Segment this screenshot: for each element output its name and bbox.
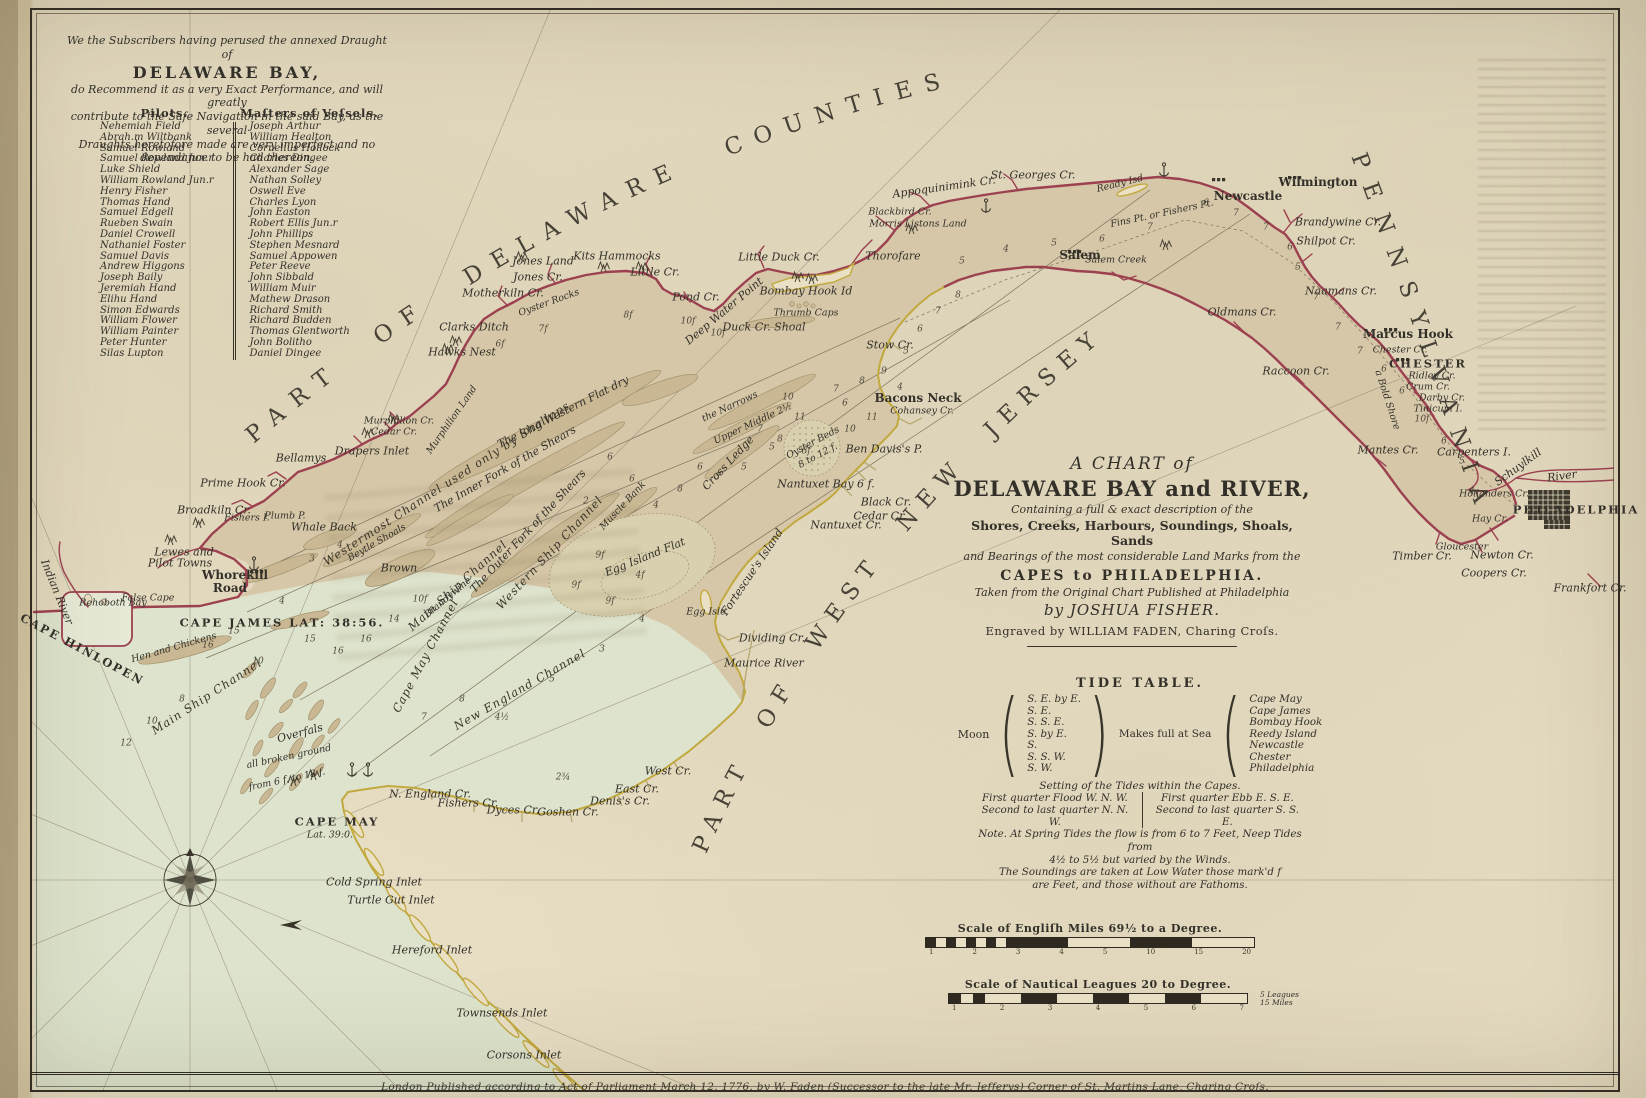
- map-label: Wilmington: [1278, 176, 1357, 188]
- soundings-note: The Soundings are taken at Low Water tho…: [975, 866, 1305, 879]
- map-label: Road: [213, 582, 247, 594]
- sounding-value: 6f: [495, 341, 504, 350]
- sounding-value: 10: [146, 718, 157, 727]
- miles-end-label: 15 Miles: [1260, 999, 1299, 1007]
- map-label: Morris Listons Land: [869, 219, 966, 229]
- chart-sheet: PART OF DELAWARE COUNTIES PART OF WEST N…: [0, 0, 1646, 1098]
- sounding-value: 5: [959, 258, 965, 267]
- sounding-value: 7f: [538, 326, 547, 335]
- sounding-value: 6: [607, 454, 613, 463]
- map-label: Maurice River: [724, 658, 804, 669]
- sounding-value: 12: [120, 740, 131, 749]
- map-label: Ben Davis's P.: [846, 444, 923, 455]
- sounding-value: 9: [881, 368, 887, 377]
- sounding-value: 6: [1399, 388, 1405, 397]
- sounding-value: 6: [697, 464, 703, 473]
- chart-subtitle: Shores, Creeks, Harbours, Soundings, Sho…: [952, 519, 1312, 548]
- map-label: Prime Hook Cr.: [200, 478, 286, 489]
- chart-engraver: Engraved by WILLIAM FADEN, Charing Croſs…: [952, 625, 1312, 638]
- scale-miles-bar: [925, 937, 1255, 948]
- map-label: Marcus Hook: [1363, 328, 1453, 340]
- scale-tick: 2: [1000, 1004, 1004, 1012]
- map-label: Jones Cr.: [513, 272, 563, 283]
- scale-leagues-title: Scale of Nautical Leagues 20 to Degree.: [948, 978, 1248, 991]
- scale-tick: 15: [1194, 948, 1203, 956]
- scale-tick: 1: [929, 948, 933, 956]
- map-label: Crum Cr.: [1406, 382, 1450, 392]
- sounding-value: 16: [332, 648, 343, 657]
- ebb-line: Second to last quarter S. S. E.: [1150, 804, 1305, 828]
- map-label: Goshen Cr.: [537, 807, 598, 818]
- spring-tides-note: Note. At Spring Tides the flow is from 6…: [975, 828, 1305, 854]
- map-label: Newton Cr.: [1470, 550, 1533, 561]
- sounding-value: 10: [782, 394, 793, 403]
- testimonial-intro: We the Subscribers having perused the an…: [62, 34, 392, 62]
- map-label: Shilpot Cr.: [1296, 236, 1355, 247]
- tide-table: TIDE TABLE. Moon ( S. E. by E.S. E.S. S.…: [975, 676, 1305, 892]
- master-name: Oswell Eve: [250, 187, 383, 198]
- scale-miles-title: Scale of Engliſh Miles 69½ to a Degree.: [925, 922, 1255, 935]
- sounding-value: 9f: [571, 582, 580, 591]
- scale-tick: 3: [1048, 1004, 1052, 1012]
- chart-author: by JOSHUA FISHER.: [952, 602, 1312, 619]
- sounding-value: 6: [1203, 200, 1209, 209]
- sounding-value: 7: [1313, 294, 1319, 303]
- sounding-value: 4f: [635, 572, 644, 581]
- map-label: Bacons Neck: [874, 392, 961, 404]
- brace-glyph: (: [999, 693, 1019, 776]
- map-label: Ridley Cr.: [1408, 371, 1455, 381]
- map-label: St. Georges Cr.: [991, 170, 1076, 181]
- tide-directions: S. E. by E.S. E.S. S. E.S. by E.S.S. S. …: [1027, 694, 1081, 775]
- title-cartouche: A CHART of DELAWARE BAY and RIVER, Conta…: [952, 455, 1312, 647]
- testimonial-title: DELAWARE BAY,: [62, 63, 392, 82]
- map-label: Oldmans Cr.: [1208, 307, 1277, 318]
- tide-place: Cape May: [1249, 694, 1322, 706]
- sounding-value: 8: [859, 378, 865, 387]
- map-label: Brandywine Cr.: [1295, 217, 1381, 228]
- sounding-value: 7: [833, 386, 839, 395]
- sounding-value: 3: [599, 646, 605, 655]
- map-label: Raccoon Cr.: [1262, 366, 1329, 377]
- masters-list: Joseph ArthurWilliam HealtonCornelius Ho…: [233, 122, 383, 360]
- sounding-value: 8f: [623, 312, 632, 321]
- imprint-text: London Published according to Act of Par…: [381, 1081, 1269, 1093]
- sounding-value: 3: [309, 556, 315, 565]
- map-label: Pond Cr.: [672, 292, 719, 303]
- chart-capes-line: CAPES to PHILADELPHIA.: [952, 568, 1312, 584]
- brace-glyph: (: [1222, 693, 1242, 776]
- map-label: Denis's Cr.: [590, 796, 650, 807]
- map-label: Kits Hammocks: [573, 251, 660, 262]
- map-label: Timber Cr.: [1392, 551, 1452, 562]
- sounding-value: 8: [955, 292, 961, 301]
- moon-label: Moon: [958, 728, 990, 741]
- map-label: Clarks Ditch: [439, 322, 509, 333]
- map-label: Little Duck Cr.: [738, 252, 819, 263]
- map-label: Salem Creek: [1085, 255, 1147, 265]
- scale-tick: 10: [1146, 948, 1155, 956]
- sounding-value: 4: [653, 502, 659, 511]
- ebb-line: First quarter Ebb E. S. E.: [1150, 792, 1305, 804]
- map-label: Bombay Hook Id: [760, 286, 853, 297]
- scale-tick: 20: [1242, 948, 1251, 956]
- soundings-note: are Feet, and those without are Fathoms.: [975, 879, 1305, 892]
- master-name: Mathew Drason: [250, 295, 383, 306]
- map-label: Mantes Cr.: [1358, 445, 1419, 456]
- map-label: Murphilion Cr.: [364, 416, 434, 426]
- sounding-value: 14: [388, 616, 399, 625]
- sounding-value: 9f: [595, 552, 604, 561]
- sounding-value: 10: [252, 658, 263, 667]
- map-label: Cedar Cr.: [371, 427, 417, 437]
- map-label: Hawks Nest: [428, 347, 496, 358]
- map-label: West Cr.: [645, 766, 691, 777]
- cartouche-rule: [1027, 646, 1237, 647]
- sounding-value: 6: [842, 400, 848, 409]
- map-label: Frankfort Cr.: [1553, 583, 1626, 594]
- scale-tick: 6: [1192, 1004, 1196, 1012]
- scale-tick: 5: [1144, 1004, 1148, 1012]
- sounding-value: 2¾: [556, 774, 570, 783]
- sounding-value: 10f: [681, 318, 696, 327]
- map-label: Hereford Inlet: [392, 945, 472, 956]
- subscribers-block: Pilots. Maſters of Veſsels. Nehemiah Fie…: [92, 106, 382, 360]
- sounding-value: 5: [549, 676, 555, 685]
- chart-title-main: DELAWARE BAY and RIVER,: [952, 477, 1312, 501]
- sounding-value: 5: [903, 348, 909, 357]
- map-label: Coopers Cr.: [1461, 568, 1527, 579]
- chart-title-line: A CHART of: [952, 455, 1312, 475]
- map-label: Fishers I.: [224, 513, 269, 523]
- sounding-value: 6: [1099, 236, 1105, 245]
- master-name: William Healton: [250, 133, 383, 144]
- map-label: Townsends Inlet: [457, 1008, 548, 1019]
- scale-leagues-bar: 5 Leagues 15 Miles: [948, 993, 1248, 1004]
- map-label: Little Cr.: [630, 267, 679, 278]
- map-label: Darby Cr.: [1419, 393, 1465, 403]
- spring-tides-note: 4½ to 5½ but varied by the Winds.: [975, 854, 1305, 867]
- scale-leagues-ticks: 1234567: [948, 1004, 1248, 1012]
- scale-tick: 7: [1240, 1004, 1244, 1012]
- sounding-value: 10f: [711, 330, 726, 339]
- sounding-value: 7: [715, 474, 721, 483]
- sounding-value: 4: [897, 384, 903, 393]
- sounding-value: 6: [1287, 244, 1293, 253]
- sounding-value: 4½: [495, 714, 509, 723]
- sounding-value: 5: [1459, 458, 1465, 467]
- map-label: Tinicum I.: [1414, 404, 1463, 414]
- sounding-value: 16: [360, 636, 371, 645]
- sounding-value: 7: [421, 714, 427, 723]
- sounding-value: 6: [629, 476, 635, 485]
- scale-tick: 5: [1103, 948, 1107, 956]
- tide-direction: S.: [1027, 740, 1081, 752]
- sounding-value: 2: [583, 498, 589, 507]
- sounding-value: 4: [1003, 246, 1009, 255]
- scale-tick: 3: [1016, 948, 1020, 956]
- sounding-value: 4: [639, 616, 645, 625]
- sounding-value: 6: [1441, 438, 1447, 447]
- map-label: Pilot Towns: [148, 558, 212, 569]
- imprint-strip: London Published according to Act of Par…: [30, 1072, 1620, 1097]
- pilot-name: Henry Fisher: [100, 187, 233, 198]
- map-label: Dividing Cr.: [739, 633, 805, 644]
- map-label: Thorofare: [865, 251, 920, 262]
- sounding-value: 15: [304, 636, 315, 645]
- map-label: Cohansey Cr.: [890, 406, 954, 416]
- map-label: Newcastle: [1214, 190, 1283, 202]
- chart-subtitle: Containing a full & exact description of…: [952, 504, 1312, 517]
- chart-subtitle: and Bearings of the most considerable La…: [952, 551, 1312, 564]
- scale-tick: 1: [952, 1004, 956, 1012]
- map-label: Motherkiln Cr.: [462, 288, 543, 299]
- pilots-list: Nehemiah FieldAbrah.m WiltbankSamuel Row…: [92, 122, 233, 360]
- map-label: Lat. 39:0.: [307, 830, 353, 840]
- tide-direction: S. S. E.: [1027, 717, 1081, 729]
- map-label: Cold Spring Inlet: [326, 877, 422, 888]
- scale-tick: 4: [1059, 948, 1063, 956]
- map-label: Corsons Inlet: [487, 1050, 562, 1061]
- scale-miles: Scale of Engliſh Miles 69½ to a Degree. …: [925, 922, 1255, 956]
- map-label: CAPE MAY: [295, 816, 380, 828]
- scale-end-labels: 5 Leagues 15 Miles: [1260, 991, 1299, 1007]
- pilots-header: Pilots.: [92, 106, 237, 120]
- map-label: Hay Cr.: [1472, 514, 1508, 524]
- sounding-value: 7: [1357, 348, 1363, 357]
- scale-leagues: Scale of Nautical Leagues 20 to Degree. …: [948, 978, 1248, 1012]
- master-name: Daniel Dingee: [250, 349, 383, 360]
- sounding-value: 8: [777, 436, 783, 445]
- sounding-value: 4: [279, 598, 285, 607]
- scale-tick: 2: [972, 948, 976, 956]
- sounding-value: 8: [179, 696, 185, 705]
- tide-place: Bombay Hook: [1249, 717, 1322, 729]
- ebb-column: First quarter Ebb E. S. E. Second to las…: [1142, 792, 1305, 828]
- sounding-value: 7: [757, 426, 763, 435]
- pilot-name: Nathaniel Foster: [100, 241, 233, 252]
- tide-place: Newcastle: [1249, 740, 1322, 752]
- map-label: Bellamys: [276, 453, 326, 464]
- map-label: Turtle Gut Inlet: [347, 895, 434, 906]
- tide-place: Philadelphia: [1249, 763, 1322, 775]
- map-label: Nantuxet Bay 6 f.: [777, 479, 874, 490]
- tide-direction: S. W.: [1027, 763, 1081, 775]
- sounding-value: 11: [866, 414, 877, 423]
- sounding-value: 16: [202, 642, 213, 651]
- sounding-value: 4: [1469, 488, 1475, 497]
- sounding-value: 5: [1295, 264, 1301, 273]
- sounding-value: 7: [1233, 210, 1239, 219]
- map-label: Plumb P.: [264, 511, 305, 521]
- pilot-name: Elihu Hand: [100, 295, 233, 306]
- map-label: Rehoboth Bay: [79, 598, 146, 608]
- sounding-value: 8: [459, 696, 465, 705]
- tide-table-title: TIDE TABLE.: [975, 676, 1305, 691]
- flood-line: Second to last quarter N. N. W.: [975, 804, 1135, 828]
- chart-source-line: Taken from the Original Chart Published …: [952, 587, 1312, 600]
- sounding-value: 6: [1381, 366, 1387, 375]
- map-label: Jones Land: [512, 256, 574, 267]
- sounding-value: 7: [935, 308, 941, 317]
- flood-line: First quarter Flood W. N. W.: [975, 792, 1135, 804]
- sounding-value: 7: [1263, 224, 1269, 233]
- sounding-value: 8: [677, 486, 683, 495]
- sounding-value: 10f: [413, 596, 428, 605]
- scale-miles-ticks: 12345101520: [925, 948, 1255, 956]
- map-label: Carpenters I.: [1437, 447, 1511, 458]
- map-label: Thrumb Caps: [773, 308, 838, 318]
- sounding-value: 4: [337, 542, 343, 551]
- tide-direction: S. E. by E.: [1027, 694, 1081, 706]
- sounding-value: 15: [228, 628, 239, 637]
- map-label: Whale Back: [291, 522, 357, 533]
- tides-setting-title: Setting of the Tides within the Capes.: [975, 780, 1305, 792]
- sounding-value: 6: [917, 326, 923, 335]
- sounding-value: 7: [1335, 324, 1341, 333]
- masters-header: Maſters of Veſsels.: [237, 106, 382, 120]
- sounding-value: 5: [769, 444, 775, 453]
- sounding-value: 10f: [1415, 416, 1430, 425]
- pilot-name: Silas Lupton: [100, 349, 233, 360]
- map-label: N. England Cr.: [389, 789, 471, 800]
- map-label: Duck Cr. Shoal: [722, 322, 805, 333]
- map-label: Chester: [1389, 358, 1467, 370]
- map-label: Whorekill: [202, 569, 268, 581]
- tide-places: Cape MayCape JamesBombay HookReedy Islan…: [1249, 694, 1322, 775]
- map-label: PHILADELPHIA: [1513, 504, 1640, 516]
- master-name: Stephen Mesnard: [250, 241, 383, 252]
- map-label: East Cr.: [615, 784, 659, 795]
- sounding-value: 5: [1051, 240, 1057, 249]
- map-label: Blackbird Cr.: [868, 207, 931, 217]
- sounding-value: 9f: [605, 598, 614, 607]
- map-label: Drapers Inlet: [335, 446, 409, 457]
- sounding-value: 5: [741, 464, 747, 473]
- map-label: Chester Cr.: [1373, 345, 1428, 355]
- sounding-value: 6f: [801, 448, 810, 457]
- brace-glyph: ): [1089, 693, 1109, 776]
- map-label: CAPE JAMES Lat: 38:56.: [180, 617, 385, 629]
- map-label: Nantuxet Cr.: [810, 520, 881, 531]
- map-label: Black Cr.: [861, 497, 911, 508]
- scale-tick: 4: [1096, 1004, 1100, 1012]
- flood-column: First quarter Flood W. N. W. Second to l…: [975, 792, 1135, 828]
- map-label: Brown: [381, 563, 417, 574]
- sounding-value: 10: [844, 426, 855, 435]
- makes-full-label: Makes full at Sea: [1119, 728, 1212, 740]
- sounding-value: 7: [1147, 224, 1153, 233]
- sounding-value: 11: [794, 414, 805, 423]
- pilot-name: Abrah.m Wiltbank: [100, 133, 233, 144]
